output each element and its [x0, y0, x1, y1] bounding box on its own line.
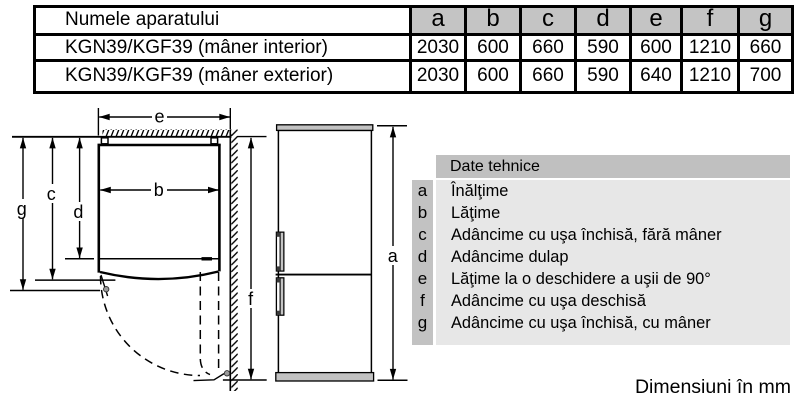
svg-text:d: d — [73, 202, 83, 222]
svg-text:a: a — [388, 246, 399, 266]
svg-text:e: e — [154, 107, 164, 127]
svg-text:g: g — [17, 199, 27, 219]
svg-text:b: b — [154, 180, 164, 200]
svg-text:c: c — [47, 184, 56, 204]
